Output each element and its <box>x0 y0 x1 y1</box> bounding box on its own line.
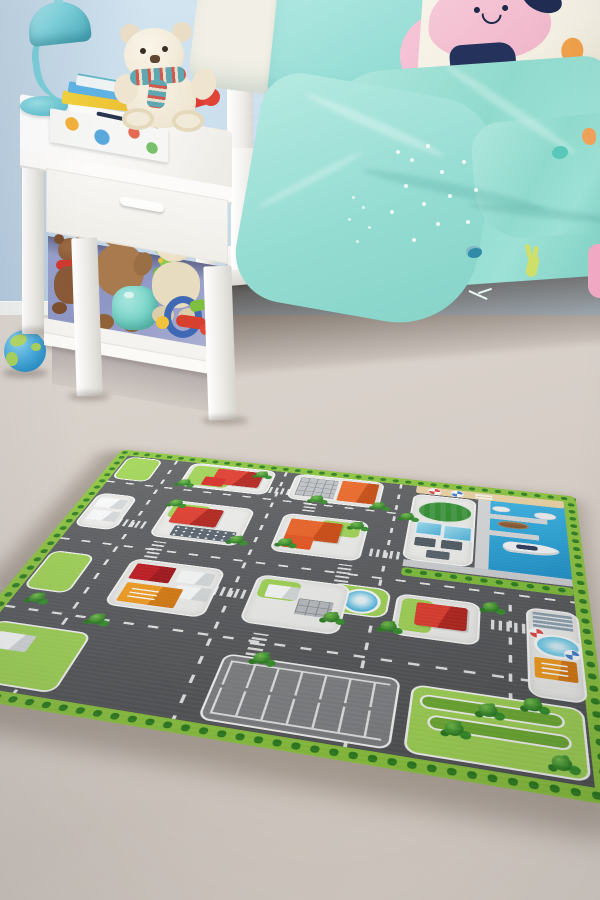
crosswalk <box>116 519 150 529</box>
globe-continent <box>31 343 41 351</box>
tree <box>26 592 48 603</box>
tree <box>86 613 108 625</box>
orange-building <box>336 481 379 505</box>
nightstand-leg-front-left <box>71 238 102 397</box>
crosswalk <box>334 564 353 583</box>
leg-shadow <box>202 416 248 425</box>
tree <box>371 502 386 510</box>
tree <box>483 601 499 613</box>
nightstand-leg-back-left <box>22 162 44 334</box>
crosswalk <box>212 586 250 599</box>
globe-ball <box>4 330 46 372</box>
lamp-cap <box>54 0 63 5</box>
quay <box>474 500 490 570</box>
leg-shadow <box>68 392 110 401</box>
nightstand-leg-front-right <box>203 266 236 421</box>
bedroom-scene <box>0 0 600 900</box>
globe-continent <box>6 352 18 366</box>
white-teddy-bear <box>114 22 218 128</box>
green-plot <box>0 621 89 692</box>
teal-ball-detail <box>124 292 134 298</box>
